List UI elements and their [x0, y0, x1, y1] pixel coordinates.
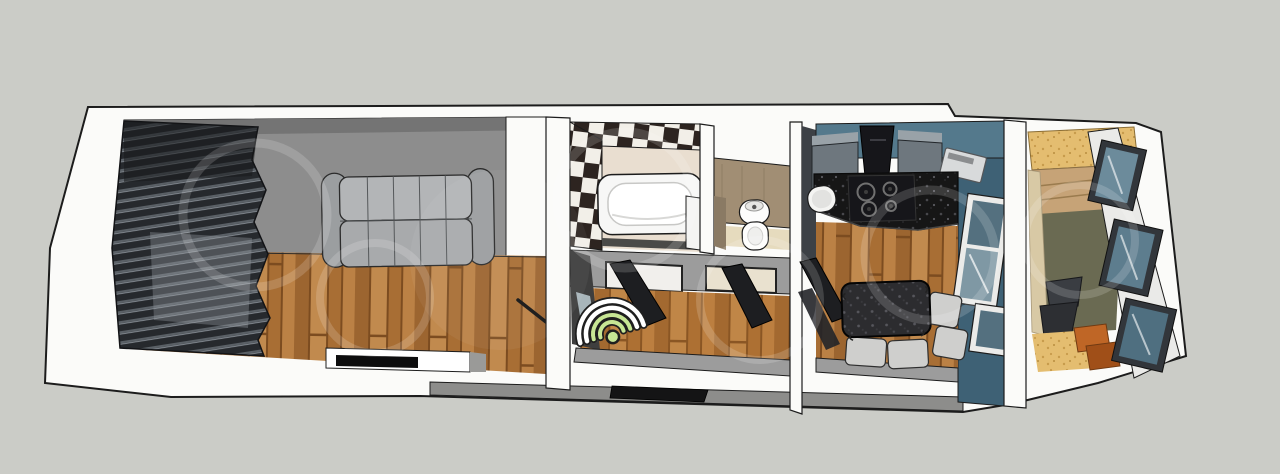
- floor-plan-svg: [0, 0, 1280, 474]
- hall-kitchen-wall: [790, 122, 802, 414]
- watermark-blob: [410, 170, 590, 350]
- chair: [932, 325, 969, 360]
- wc-left-wall: [714, 196, 726, 250]
- floor-plan-image: [0, 0, 1280, 474]
- kitchen-balcony-wall: [1004, 120, 1026, 408]
- blinds-shadow-top: [124, 121, 258, 182]
- dining-table: [841, 280, 931, 340]
- kitchen: [798, 121, 1015, 406]
- chair: [845, 337, 887, 368]
- chair: [887, 339, 928, 369]
- tv-niche-side: [470, 352, 486, 372]
- chair-seat: [1040, 302, 1078, 336]
- bath-wc-wall: [700, 124, 714, 254]
